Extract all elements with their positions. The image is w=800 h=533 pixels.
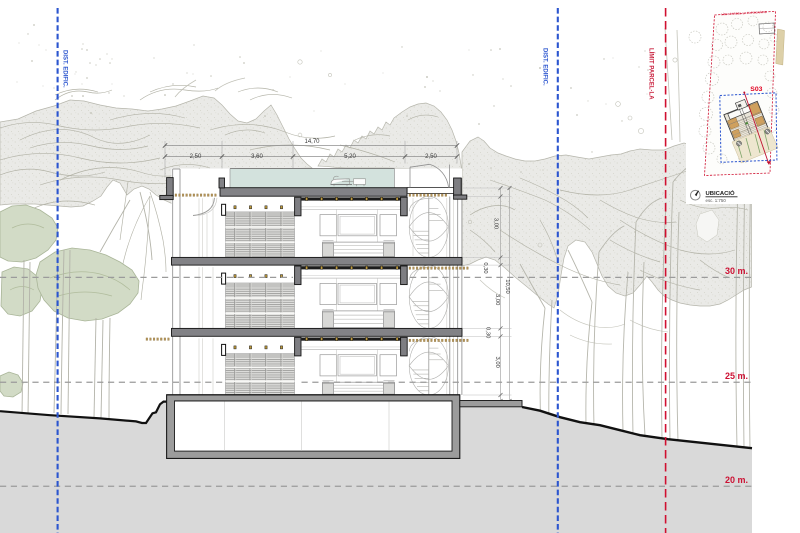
svg-text:UBICACIÓ: UBICACIÓ	[706, 189, 736, 197]
svg-text:25 m.: 25 m.	[725, 371, 748, 381]
svg-text:2,50: 2,50	[425, 154, 437, 160]
svg-text:0,30: 0,30	[482, 262, 488, 273]
svg-text:3,60: 3,60	[251, 154, 263, 160]
svg-text:S03: S03	[750, 86, 762, 93]
svg-text:LÍMIT PARCEL·LA: LÍMIT PARCEL·LA	[648, 48, 656, 100]
svg-text:3,00: 3,00	[493, 218, 499, 229]
svg-text:3,00: 3,00	[494, 294, 500, 305]
svg-text:DIST. EDIFIC.: DIST. EDIFIC.	[542, 48, 548, 86]
svg-text:5,20: 5,20	[344, 154, 356, 160]
svg-text:20 m.: 20 m.	[725, 475, 748, 485]
svg-text:30 m.: 30 m.	[725, 266, 748, 276]
svg-text:2,50: 2,50	[190, 154, 202, 160]
svg-text:DIST. EDIFIC.: DIST. EDIFIC.	[62, 50, 68, 88]
svg-text:3,00: 3,00	[494, 357, 500, 368]
svg-text:0,30: 0,30	[485, 327, 491, 338]
svg-text:10,50: 10,50	[504, 279, 510, 294]
svg-text:esc. 1:750: esc. 1:750	[706, 198, 727, 203]
svg-text:14,70: 14,70	[304, 139, 320, 145]
